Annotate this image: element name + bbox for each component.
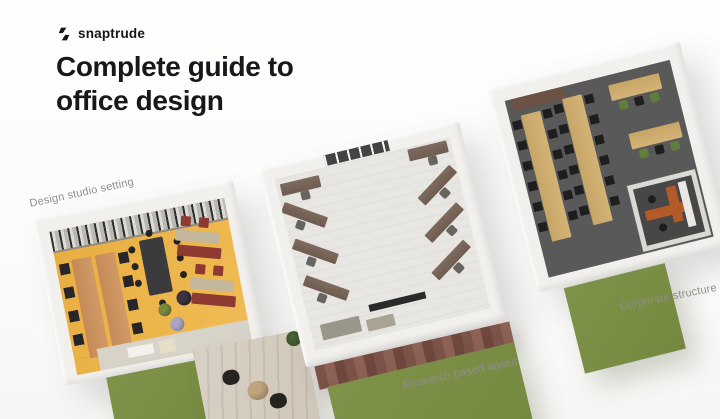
corporate-side-desk	[628, 121, 682, 149]
planter-box	[320, 316, 363, 341]
sofa-chair	[195, 264, 206, 275]
sofa-group-1	[174, 215, 225, 261]
snaptrude-logo-icon	[57, 27, 71, 41]
page-title: Complete guide tooffice design	[56, 50, 293, 118]
conference-chairs	[128, 246, 136, 254]
corporate-floor	[505, 60, 714, 278]
corporate-side-desk	[608, 73, 662, 101]
research-desk	[417, 165, 457, 206]
deck-poufs-black	[221, 368, 241, 386]
title-line-1: Complete guide to	[56, 51, 293, 82]
reception-mat	[127, 343, 154, 358]
manager-cabin	[627, 169, 711, 252]
research-desk	[280, 175, 322, 196]
cabin-chairs	[647, 194, 657, 204]
research-desk	[292, 239, 339, 265]
sofa-chair	[198, 217, 209, 228]
hero-canvas: snaptrude Complete guide tooffice design…	[0, 0, 720, 419]
research-desk	[281, 202, 328, 228]
deck-pouf-tan	[246, 379, 270, 402]
sofa-table	[190, 277, 235, 292]
sofa-couch	[191, 293, 236, 308]
research-desk	[424, 202, 464, 243]
research-floor	[274, 137, 490, 350]
sofa-group-2	[188, 263, 239, 309]
title-line-2: office design	[56, 85, 224, 116]
sofa-chair	[213, 265, 224, 276]
planter-box	[366, 314, 396, 332]
sofa-table	[175, 229, 220, 244]
research-desk	[431, 240, 471, 281]
window-bench	[368, 292, 426, 312]
snaptrude-logo-text: snaptrude	[78, 26, 145, 41]
sofa-chair	[180, 216, 191, 227]
research-desk	[303, 275, 350, 301]
ottoman-lilac	[169, 316, 185, 332]
snaptrude-logo[interactable]: snaptrude	[57, 26, 145, 41]
research-desk	[407, 140, 449, 161]
conference-table	[139, 236, 173, 296]
sofa-couch	[177, 244, 222, 259]
ottoman-olive	[157, 302, 172, 317]
corporate-building	[487, 41, 720, 293]
reception-mat	[158, 338, 176, 354]
